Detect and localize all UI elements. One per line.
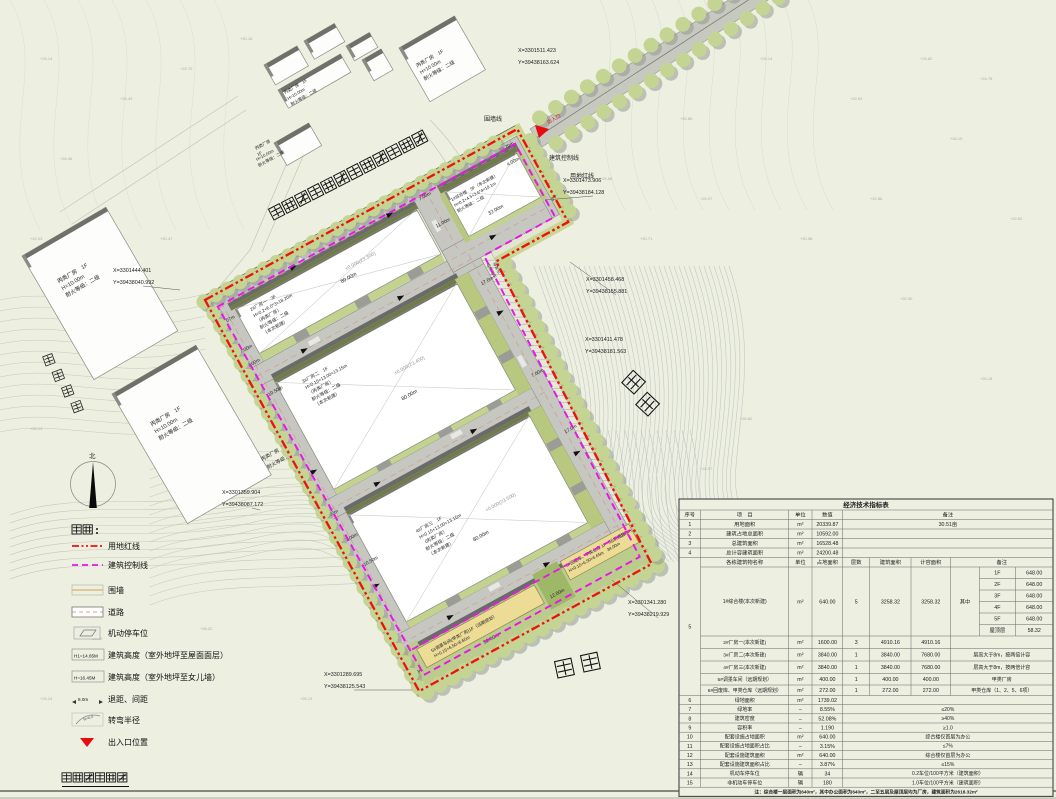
svg-text:综合楼仅首层为办公: 综合楼仅首层为办公 — [925, 752, 970, 759]
svg-text:272.00: 272.00 — [882, 688, 898, 694]
svg-text:5F: 5F — [994, 617, 1001, 623]
svg-text:绿地面积: 绿地面积 — [735, 697, 755, 704]
svg-text:–: – — [799, 726, 802, 732]
svg-text:转弯半径: 转弯半径 — [108, 715, 140, 725]
svg-text:34: 34 — [824, 771, 830, 777]
svg-text:配套设施建筑面积占比: 配套设施建筑面积占比 — [720, 761, 770, 768]
svg-text:4910.16: 4910.16 — [881, 640, 900, 646]
svg-text:X=3301359.904: X=3301359.904 — [222, 490, 260, 496]
svg-text:Y=39438125.543: Y=39438125.543 — [324, 684, 365, 690]
svg-text:180: 180 — [823, 781, 832, 787]
svg-text:建筑面积: 建筑面积 — [880, 558, 902, 566]
svg-text:3258.32: 3258.32 — [921, 599, 940, 605]
svg-text:15: 15 — [687, 781, 693, 787]
svg-text:+22.70: +22.70 — [180, 66, 193, 71]
svg-text:Y=39438181.563: Y=39438181.563 — [585, 349, 626, 355]
svg-text:24200.48: 24200.48 — [816, 551, 838, 557]
svg-text:m²: m² — [797, 522, 803, 528]
svg-text:+24.82: +24.82 — [920, 56, 933, 61]
svg-text:用地红线: 用地红线 — [108, 541, 140, 551]
svg-text:m²: m² — [797, 541, 803, 547]
svg-text:9: 9 — [688, 726, 691, 732]
svg-text:+26.15: +26.15 — [950, 136, 963, 141]
svg-text:层高大于8m，按两倍计容: 层高大于8m，按两倍计容 — [973, 652, 1030, 659]
svg-text:配套设施占地面积占比: 配套设施占地面积占比 — [720, 743, 770, 750]
svg-text:1: 1 — [855, 653, 858, 659]
svg-text:11: 11 — [687, 744, 693, 750]
svg-text:6#回废库、甲类仓库（远期规划）: 6#回废库、甲类仓库（远期规划） — [708, 687, 782, 694]
svg-text:围墙线: 围墙线 — [484, 115, 502, 123]
svg-text:+20.47: +20.47 — [160, 236, 173, 241]
svg-text:8.55%: 8.55% — [820, 707, 835, 713]
svg-text:≤7%: ≤7% — [943, 744, 954, 750]
svg-text:+24.46: +24.46 — [60, 156, 73, 161]
svg-text:3840.00: 3840.00 — [881, 665, 900, 671]
svg-text:6: 6 — [688, 698, 691, 704]
svg-text:m²: m² — [797, 688, 803, 694]
svg-text:绿地率: 绿地率 — [737, 706, 752, 713]
svg-text:52.08%: 52.08% — [818, 716, 836, 722]
svg-text:甲类仓库（1、2、5、6项）: 甲类仓库（1、2、5、6项） — [971, 687, 1032, 694]
svg-text:648.00: 648.00 — [1026, 617, 1042, 623]
svg-text:+26.22: +26.22 — [200, 626, 213, 631]
svg-text:m²: m² — [797, 532, 803, 538]
svg-text:58.32: 58.32 — [1028, 628, 1041, 634]
svg-text:建筑占地总面积: 建筑占地总面积 — [726, 530, 764, 538]
svg-text:注：综合楼一层面积为640m²，其中办公面积为640m²，二: 注：综合楼一层面积为640m²，其中办公面积为640m²，二至五层及屋顶层均为厂… — [754, 788, 978, 795]
svg-text:3.15%: 3.15% — [820, 744, 835, 750]
svg-text:5: 5 — [688, 624, 691, 630]
svg-text:Y=39438040.992: Y=39438040.992 — [113, 280, 154, 286]
svg-text:3#厂房二(本次新建): 3#厂房二(本次新建) — [723, 652, 766, 659]
svg-text:+24.14: +24.14 — [760, 56, 773, 61]
svg-text:–: – — [799, 707, 802, 713]
svg-text:+24.07: +24.07 — [700, 196, 713, 201]
svg-text:H=16.45M: H=16.45M — [74, 676, 95, 681]
svg-text:7: 7 — [688, 707, 691, 713]
svg-text:北: 北 — [89, 452, 96, 460]
svg-text:4#厂房三(本次新建): 4#厂房三(本次新建) — [723, 664, 766, 671]
svg-text:建筑控制线: 建筑控制线 — [549, 154, 579, 162]
svg-text:+24.14: +24.14 — [40, 56, 53, 61]
svg-text:272.00: 272.00 — [819, 688, 835, 694]
svg-text:用地面积: 用地面积 — [734, 520, 756, 528]
svg-text:Y=39438184.128: Y=39438184.128 — [563, 190, 604, 196]
svg-text:屋顶层: 屋顶层 — [989, 627, 1005, 634]
svg-text:400.00: 400.00 — [923, 677, 939, 683]
svg-text:12: 12 — [687, 753, 693, 759]
svg-text:3840.00: 3840.00 — [818, 653, 837, 659]
svg-text:Y=39438219.929: Y=39438219.929 — [628, 612, 669, 618]
svg-text:备注: 备注 — [943, 511, 954, 519]
svg-text:2: 2 — [688, 532, 691, 538]
svg-text:数值: 数值 — [822, 511, 833, 519]
svg-text:+22.62: +22.62 — [1010, 216, 1023, 221]
svg-text:8.0m: 8.0m — [78, 697, 88, 702]
svg-text:7680.00: 7680.00 — [921, 653, 940, 659]
svg-text:机动停车位: 机动停车位 — [108, 628, 148, 638]
svg-text:其中: 其中 — [960, 597, 971, 605]
svg-text:甲类厂房: 甲类厂房 — [992, 676, 1012, 683]
svg-text:X=3301511.423: X=3301511.423 — [518, 48, 556, 54]
svg-text:30.51亩: 30.51亩 — [939, 520, 958, 528]
svg-text:1: 1 — [855, 688, 858, 694]
svg-text:≥1.0: ≥1.0 — [943, 725, 953, 731]
svg-text:13: 13 — [687, 762, 693, 768]
svg-text:1F: 1F — [994, 571, 1001, 577]
svg-text:+20.13: +20.13 — [300, 696, 313, 701]
svg-text:+22.86: +22.86 — [870, 196, 883, 201]
svg-text:+22.07: +22.07 — [700, 466, 713, 471]
svg-text:建筑控制线: 建筑控制线 — [108, 560, 148, 570]
svg-text:道路: 道路 — [108, 607, 124, 617]
svg-text:序号: 序号 — [684, 511, 695, 519]
svg-text:1.0车位/100平方米（建筑面积）: 1.0车位/100平方米（建筑面积） — [912, 779, 984, 786]
svg-text:+20.30: +20.30 — [900, 296, 913, 301]
svg-text:400.00: 400.00 — [882, 677, 898, 683]
svg-text:–: – — [799, 716, 802, 722]
svg-text:648.00: 648.00 — [1026, 594, 1042, 600]
svg-text:围墙: 围墙 — [108, 585, 124, 595]
svg-text:单位: 单位 — [795, 558, 806, 566]
svg-text:建筑高度（室外地坪至屋面面层）: 建筑高度（室外地坪至屋面面层） — [108, 650, 228, 660]
svg-text:退距、间距: 退距、间距 — [108, 695, 148, 704]
svg-text:4910.16: 4910.16 — [921, 640, 940, 646]
svg-text:机动车停车位: 机动车停车位 — [730, 770, 760, 777]
svg-text:7680.00: 7680.00 — [921, 665, 940, 671]
svg-text:建筑高度（室外地坪至女儿墙）: 建筑高度（室外地坪至女儿墙） — [108, 672, 220, 682]
svg-text:项 目: 项 目 — [737, 512, 753, 519]
svg-text:3: 3 — [688, 541, 691, 547]
svg-text:辆: 辆 — [798, 769, 804, 777]
svg-text:–: – — [799, 762, 802, 768]
svg-text:3.87%: 3.87% — [820, 762, 835, 768]
svg-text:总计容建筑面积: 总计容建筑面积 — [726, 549, 764, 557]
svg-text:+24.43: +24.43 — [120, 96, 133, 101]
svg-text:配套设施占地面积: 配套设施占地面积 — [725, 734, 765, 741]
svg-text:+22.54: +22.54 — [850, 96, 863, 101]
svg-text:X=3301289.695: X=3301289.695 — [324, 672, 362, 678]
svg-text:H1=14.65M: H1=14.65M — [74, 654, 98, 659]
svg-text:5#调墨车间（远期规划）: 5#调墨车间（远期规划） — [718, 676, 772, 683]
svg-text:X=3301341.280: X=3301341.280 — [628, 600, 666, 606]
svg-text:出入口位置: 出入口位置 — [108, 737, 148, 747]
svg-text:辆: 辆 — [798, 779, 804, 787]
svg-text:m²: m² — [797, 735, 803, 741]
svg-text:3F: 3F — [994, 594, 1001, 600]
svg-text:640.00: 640.00 — [819, 735, 835, 741]
svg-text:综合楼仅首层为办公: 综合楼仅首层为办公 — [925, 734, 970, 741]
svg-text:3258.32: 3258.32 — [881, 599, 900, 605]
svg-text:各栋建筑物名称: 各栋建筑物名称 — [726, 558, 764, 566]
svg-text:层数: 层数 — [851, 558, 862, 566]
svg-text:648.00: 648.00 — [1026, 605, 1042, 611]
svg-text:m²: m² — [797, 640, 803, 646]
svg-text:备注: 备注 — [996, 558, 1007, 566]
svg-text:+24.66: +24.66 — [600, 176, 613, 181]
svg-text:m²: m² — [797, 665, 803, 671]
svg-text:1739.02: 1739.02 — [818, 698, 837, 704]
svg-text:建筑密度: 建筑密度 — [735, 715, 755, 722]
svg-text:X=3301411.478: X=3301411.478 — [585, 337, 623, 343]
svg-text:单位: 单位 — [795, 511, 806, 519]
svg-text:+22.03: +22.03 — [30, 236, 43, 241]
svg-text:1#综合楼(本次新建): 1#综合楼(本次新建) — [723, 598, 767, 605]
svg-text:m²: m² — [797, 698, 803, 704]
svg-text:Y=39438163.624: Y=39438163.624 — [518, 60, 559, 66]
svg-text:Y=39438155.881: Y=39438155.881 — [586, 289, 627, 295]
svg-text:+20.82: +20.82 — [740, 416, 753, 421]
svg-text:2#厂房一(本次新建): 2#厂房一(本次新建) — [723, 639, 766, 646]
svg-text:m²: m² — [797, 653, 803, 659]
svg-text:640.00: 640.00 — [819, 753, 835, 759]
svg-text:+20.85: +20.85 — [680, 116, 693, 121]
svg-text:m²: m² — [797, 551, 803, 557]
svg-text:14: 14 — [687, 771, 693, 777]
svg-text:Y=39438087.172: Y=39438087.172 — [222, 502, 263, 508]
svg-text:5: 5 — [855, 599, 858, 605]
svg-text:m²: m² — [797, 753, 803, 759]
svg-text:m²: m² — [797, 599, 803, 605]
svg-text:容积率: 容积率 — [737, 724, 752, 731]
svg-text:10592.00: 10592.00 — [816, 532, 838, 538]
svg-text:≥40%: ≥40% — [942, 716, 955, 722]
svg-text:648.00: 648.00 — [1026, 571, 1042, 577]
svg-text:16528.48: 16528.48 — [816, 541, 838, 547]
svg-text:总建筑面积: 总建筑面积 — [731, 539, 758, 547]
svg-text:m²: m² — [797, 677, 803, 683]
svg-text:≤20%: ≤20% — [942, 707, 955, 713]
svg-text:10: 10 — [687, 735, 693, 741]
svg-text:640.00: 640.00 — [819, 599, 835, 605]
svg-text:1: 1 — [855, 677, 858, 683]
svg-text:1.190: 1.190 — [821, 726, 834, 732]
svg-text:400.00: 400.00 — [819, 677, 835, 683]
svg-text:1: 1 — [855, 665, 858, 671]
svg-text:非机动车停车位: 非机动车停车位 — [727, 779, 762, 786]
svg-text:1600.00: 1600.00 — [818, 640, 837, 646]
svg-text:占地面积: 占地面积 — [817, 558, 839, 566]
svg-text:+20.58: +20.58 — [800, 236, 813, 241]
svg-text:层高大于8m，按两倍计容: 层高大于8m，按两倍计容 — [973, 664, 1030, 671]
svg-text:3840.00: 3840.00 — [818, 665, 837, 671]
svg-text:–: – — [799, 744, 802, 750]
svg-text:+24.24: +24.24 — [40, 696, 53, 701]
svg-text:8: 8 — [688, 716, 691, 722]
svg-text:20339.87: 20339.87 — [816, 522, 838, 528]
svg-text:+20.16: +20.16 — [240, 36, 253, 41]
svg-text:3840.00: 3840.00 — [881, 653, 900, 659]
svg-text:X=3301444.401: X=3301444.401 — [113, 268, 151, 274]
svg-text:经济技术指标表: 经济技术指标表 — [843, 500, 889, 509]
svg-text:4F: 4F — [994, 605, 1001, 611]
svg-text:计容面积: 计容面积 — [920, 558, 942, 566]
svg-text:3: 3 — [855, 640, 858, 646]
svg-text:+20.71: +20.71 — [640, 236, 653, 241]
svg-text:≤15%: ≤15% — [942, 762, 955, 768]
svg-text:648.00: 648.00 — [1026, 582, 1042, 588]
svg-text:2F: 2F — [994, 582, 1001, 588]
svg-text:0.2车位/100平方米（建筑面积）: 0.2车位/100平方米（建筑面积） — [912, 770, 984, 777]
svg-text:配套设施建筑面积: 配套设施建筑面积 — [725, 752, 765, 759]
svg-text:+20.13: +20.13 — [30, 426, 43, 431]
svg-text:1: 1 — [688, 522, 691, 528]
svg-text:用地红线: 用地红线 — [570, 172, 594, 180]
svg-text:+24.78: +24.78 — [980, 76, 993, 81]
svg-text:272.00: 272.00 — [923, 688, 939, 694]
svg-text:+20.18: +20.18 — [980, 376, 993, 381]
svg-text:4: 4 — [688, 551, 691, 557]
